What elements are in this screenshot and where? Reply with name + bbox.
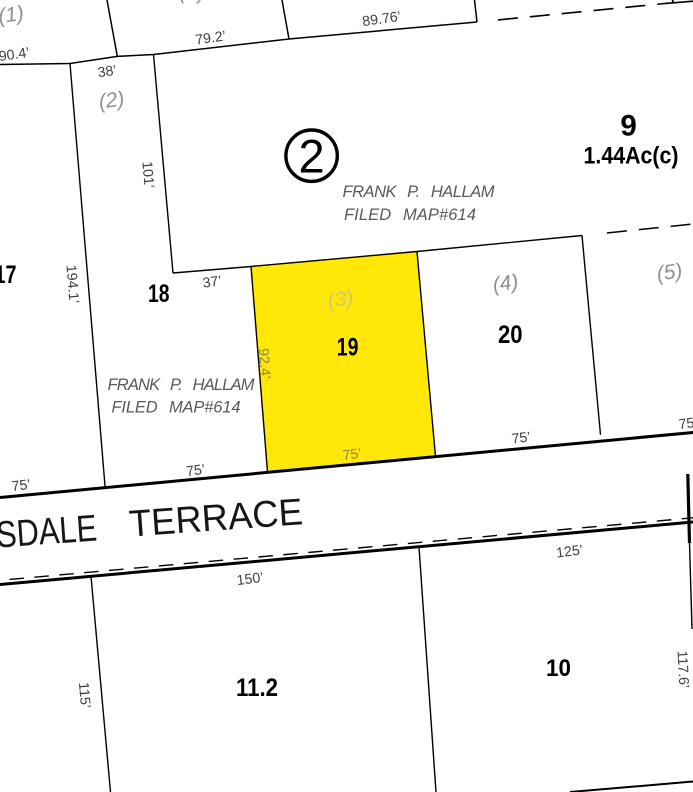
svg-text:FILED MAP#614: FILED MAP#614 xyxy=(344,206,476,224)
svg-text:101’: 101’ xyxy=(138,161,156,189)
svg-text:10: 10 xyxy=(546,655,571,682)
svg-text:1.44Ac(c): 1.44Ac(c) xyxy=(584,142,679,169)
svg-text:75’: 75’ xyxy=(342,446,363,464)
svg-text:92.4’: 92.4’ xyxy=(255,348,273,380)
svg-text:38’: 38’ xyxy=(97,63,118,81)
svg-text:FRANK P. HALLAM: FRANK P. HALLAM xyxy=(343,183,495,201)
svg-text:75’: 75’ xyxy=(185,462,206,480)
svg-text:17: 17 xyxy=(0,261,17,289)
svg-text:SDALE: SDALE xyxy=(0,506,98,555)
svg-text:20: 20 xyxy=(498,321,523,349)
svg-text:75’: 75’ xyxy=(678,415,693,433)
svg-text:18: 18 xyxy=(148,280,170,308)
svg-text:(1): (1) xyxy=(0,2,25,28)
svg-text:115’: 115’ xyxy=(75,682,93,709)
svg-text:FRANK P. HALLAM: FRANK P. HALLAM xyxy=(108,376,255,394)
svg-text:11.2: 11.2 xyxy=(236,674,278,702)
svg-text:117.6’: 117.6’ xyxy=(674,650,692,688)
svg-text:75’: 75’ xyxy=(11,477,32,495)
svg-text:150’: 150’ xyxy=(236,570,265,589)
svg-text:FILED MAP#614: FILED MAP#614 xyxy=(112,399,241,417)
svg-text:9: 9 xyxy=(620,110,636,143)
svg-text:(3): (3) xyxy=(326,286,355,312)
svg-text:(6): (6) xyxy=(179,0,205,4)
svg-text:37’: 37’ xyxy=(202,273,223,291)
svg-text:(5): (5) xyxy=(655,259,684,285)
svg-text:194.1’: 194.1’ xyxy=(62,264,81,304)
svg-text:2: 2 xyxy=(299,130,325,183)
svg-text:(2): (2) xyxy=(97,87,126,113)
svg-text:(4): (4) xyxy=(491,270,520,296)
svg-text:75’: 75’ xyxy=(511,429,532,447)
svg-text:19: 19 xyxy=(337,333,359,361)
svg-text:125’: 125’ xyxy=(555,542,584,561)
